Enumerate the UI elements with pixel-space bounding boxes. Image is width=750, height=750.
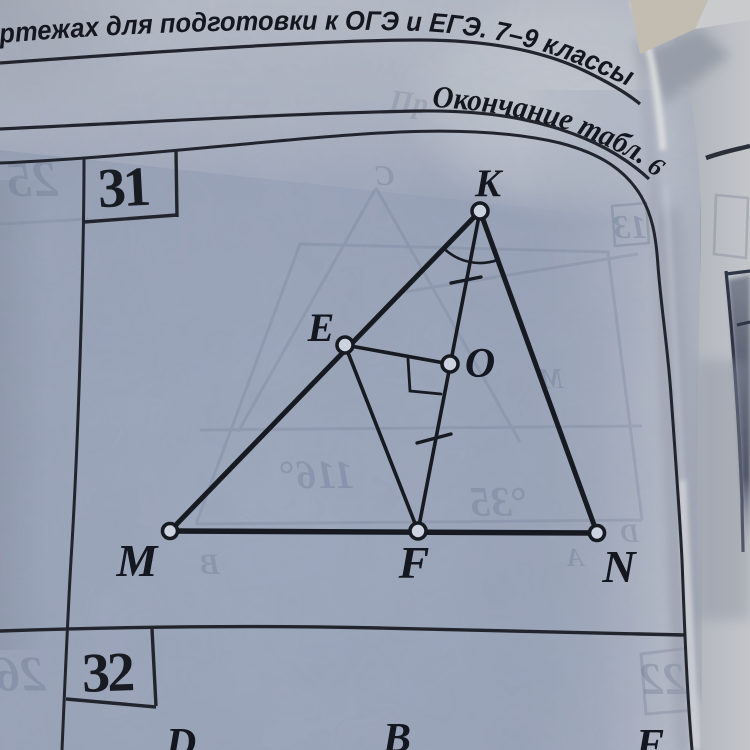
svg-text:M: M (116, 535, 160, 586)
svg-text:D: D (165, 721, 196, 750)
svg-text:31: 31 (96, 156, 150, 221)
svg-text:F: F (398, 537, 430, 588)
svg-text:B: B (382, 716, 411, 750)
svg-text:F: F (635, 722, 664, 750)
svg-text:O: O (465, 341, 495, 387)
svg-text:K: K (474, 162, 504, 205)
svg-text:32: 32 (81, 641, 134, 705)
svg-text:N: N (601, 541, 637, 592)
svg-text:E: E (307, 305, 335, 350)
